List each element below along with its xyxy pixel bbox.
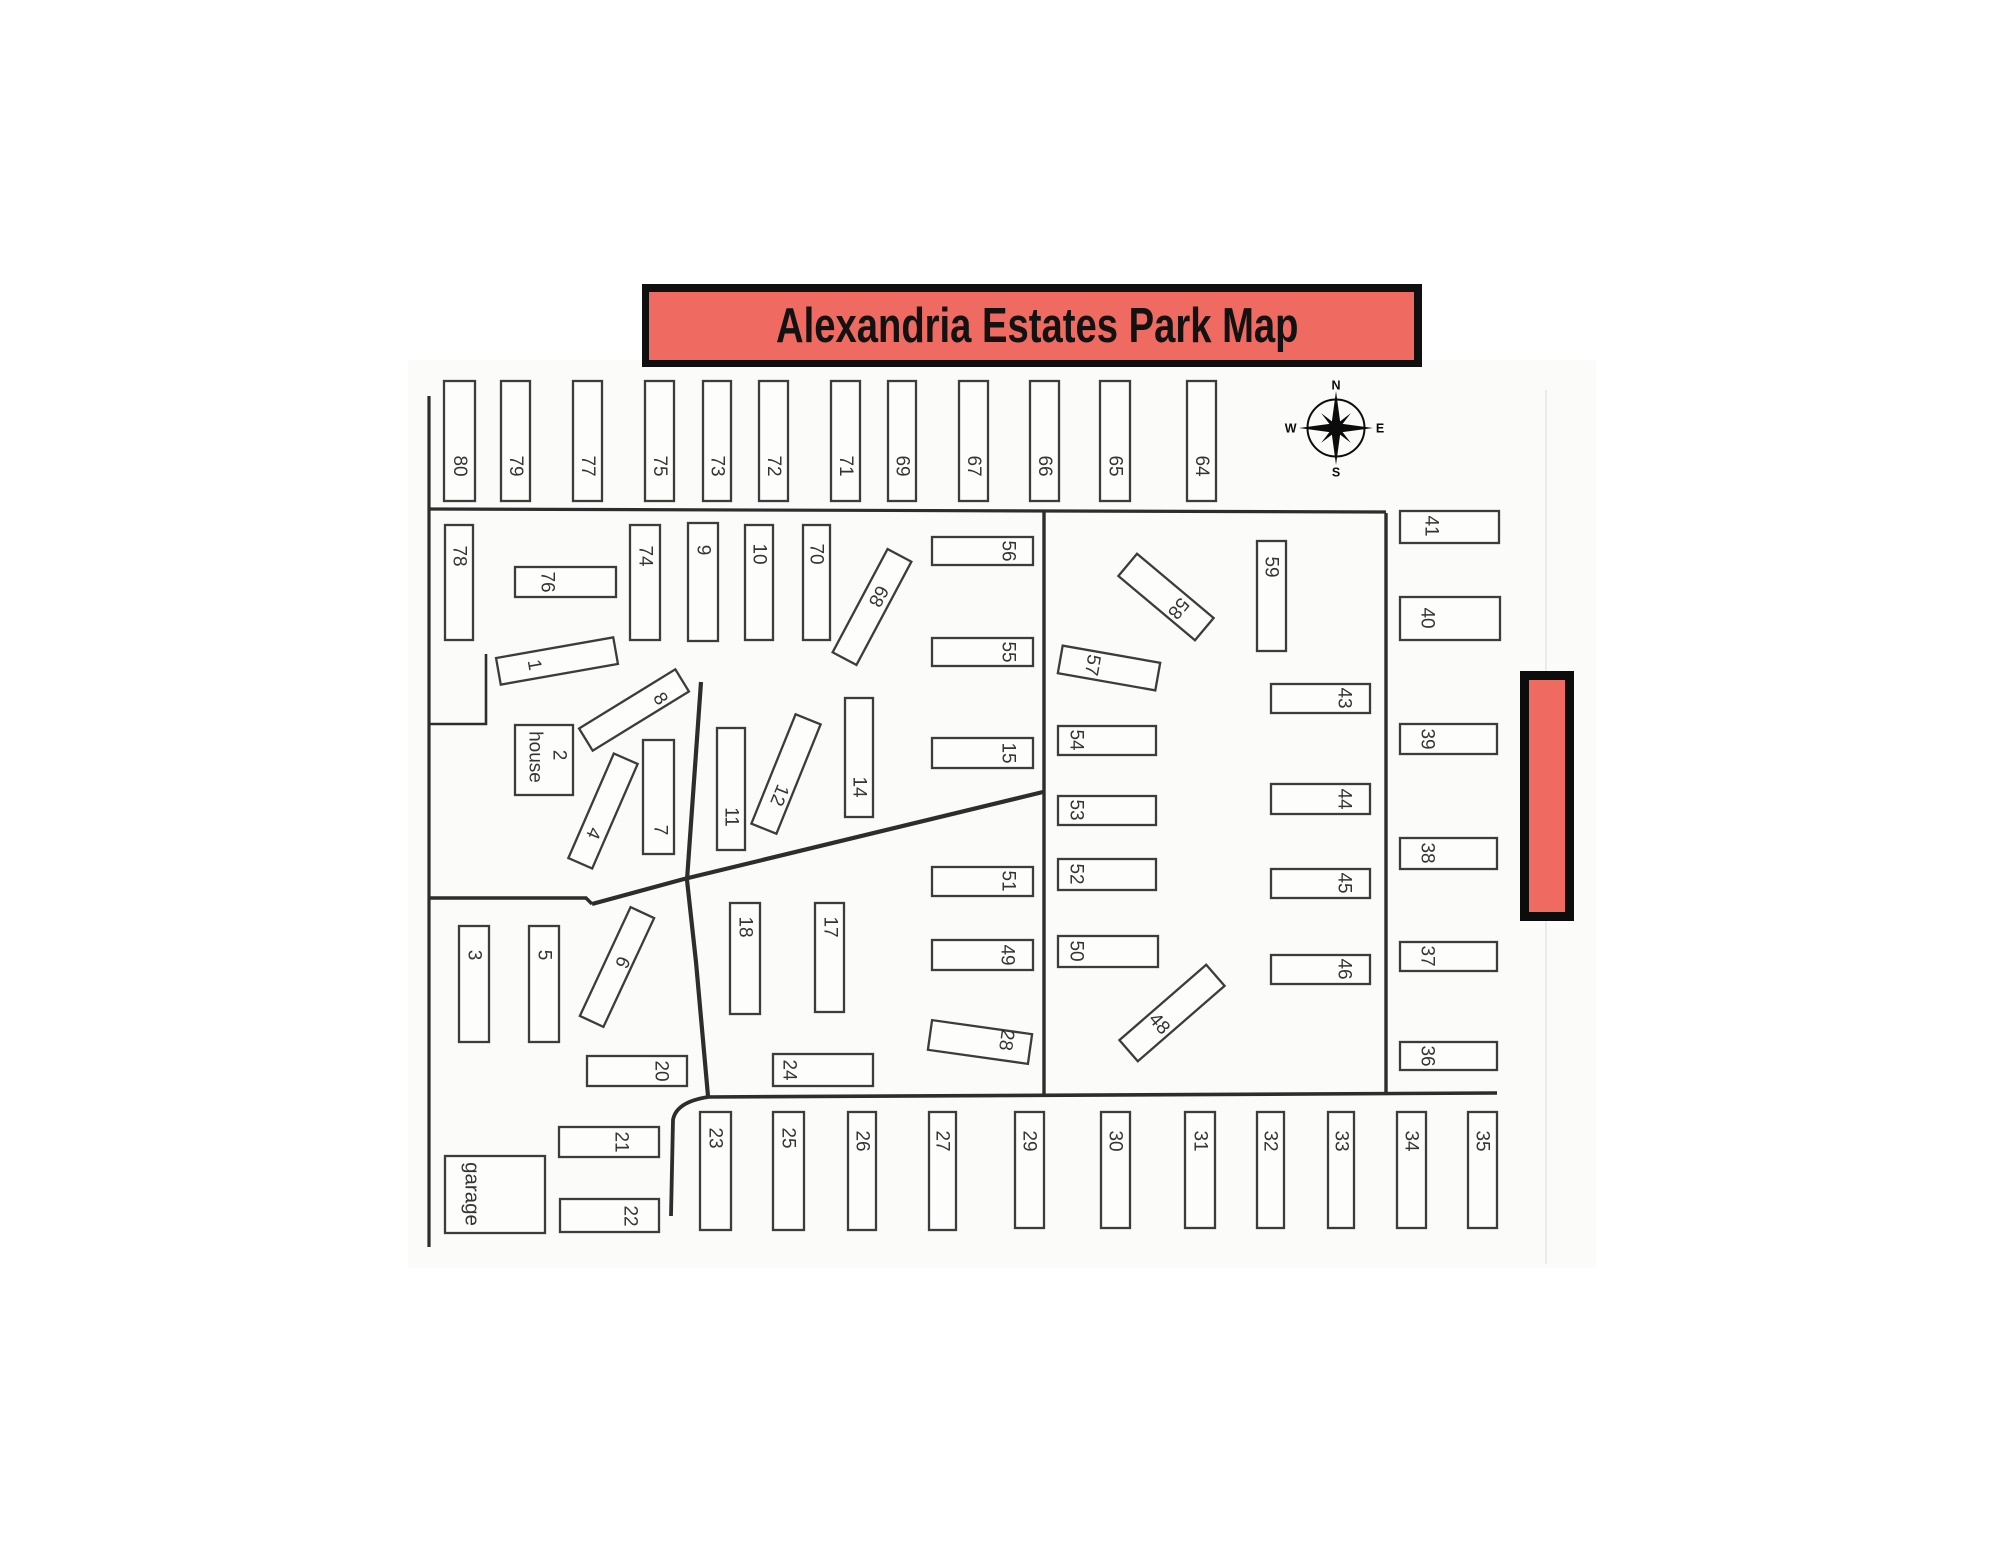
svg-text:10: 10 bbox=[749, 543, 770, 564]
svg-text:30: 30 bbox=[1105, 1130, 1126, 1151]
svg-text:80: 80 bbox=[449, 455, 470, 476]
svg-text:24: 24 bbox=[779, 1059, 800, 1081]
svg-text:56: 56 bbox=[998, 540, 1019, 561]
svg-text:37: 37 bbox=[1417, 945, 1438, 966]
svg-text:39: 39 bbox=[1417, 728, 1438, 749]
svg-text:71: 71 bbox=[835, 455, 856, 476]
svg-text:28: 28 bbox=[994, 1028, 1018, 1052]
svg-text:52: 52 bbox=[1066, 863, 1087, 884]
svg-text:14: 14 bbox=[849, 776, 870, 798]
svg-text:W: W bbox=[1285, 422, 1297, 436]
svg-text:33: 33 bbox=[1331, 1130, 1352, 1151]
svg-text:51: 51 bbox=[998, 870, 1019, 891]
svg-text:59: 59 bbox=[1261, 556, 1282, 577]
svg-text:55: 55 bbox=[998, 641, 1019, 662]
svg-text:36: 36 bbox=[1417, 1045, 1438, 1066]
svg-text:46: 46 bbox=[1334, 958, 1355, 979]
svg-text:5: 5 bbox=[534, 950, 555, 961]
svg-text:57: 57 bbox=[1080, 653, 1104, 677]
svg-text:54: 54 bbox=[1066, 729, 1087, 751]
svg-text:75: 75 bbox=[649, 455, 670, 476]
svg-text:40: 40 bbox=[1417, 607, 1438, 628]
svg-text:76: 76 bbox=[537, 571, 558, 592]
svg-text:2: 2 bbox=[549, 750, 570, 761]
svg-text:34: 34 bbox=[1401, 1130, 1422, 1152]
svg-text:23: 23 bbox=[705, 1127, 726, 1148]
svg-text:69: 69 bbox=[892, 455, 913, 476]
svg-text:44: 44 bbox=[1334, 788, 1355, 810]
svg-text:41: 41 bbox=[1421, 515, 1442, 536]
svg-text:77: 77 bbox=[577, 455, 598, 476]
svg-text:17: 17 bbox=[820, 916, 841, 937]
svg-text:22: 22 bbox=[620, 1205, 641, 1226]
svg-text:25: 25 bbox=[778, 1127, 799, 1148]
svg-text:18: 18 bbox=[735, 916, 756, 937]
svg-text:E: E bbox=[1376, 422, 1384, 436]
svg-text:73: 73 bbox=[707, 455, 728, 476]
svg-text:65: 65 bbox=[1105, 455, 1126, 476]
svg-text:15: 15 bbox=[998, 742, 1019, 763]
svg-text:66: 66 bbox=[1034, 455, 1055, 476]
svg-text:7: 7 bbox=[650, 825, 671, 836]
svg-text:53: 53 bbox=[1066, 799, 1087, 820]
svg-text:38: 38 bbox=[1417, 842, 1438, 863]
svg-text:3: 3 bbox=[464, 950, 485, 961]
svg-text:31: 31 bbox=[1190, 1130, 1211, 1151]
svg-text:45: 45 bbox=[1334, 872, 1355, 893]
svg-text:26: 26 bbox=[852, 1130, 873, 1151]
svg-text:S: S bbox=[1332, 466, 1340, 480]
svg-text:43: 43 bbox=[1334, 687, 1355, 708]
svg-text:garage: garage bbox=[461, 1162, 484, 1226]
svg-text:32: 32 bbox=[1260, 1130, 1281, 1151]
svg-text:11: 11 bbox=[721, 807, 742, 827]
svg-text:49: 49 bbox=[997, 944, 1018, 965]
svg-text:79: 79 bbox=[505, 455, 526, 476]
svg-text:29: 29 bbox=[1019, 1130, 1040, 1151]
svg-text:64: 64 bbox=[1191, 455, 1212, 477]
svg-text:20: 20 bbox=[651, 1060, 672, 1081]
svg-text:Alexandria Estates Park Map: Alexandria Estates Park Map bbox=[776, 299, 1299, 354]
svg-text:74: 74 bbox=[635, 545, 656, 567]
svg-text:9: 9 bbox=[693, 545, 714, 556]
svg-text:67: 67 bbox=[963, 455, 984, 476]
svg-text:72: 72 bbox=[763, 455, 784, 476]
svg-text:21: 21 bbox=[611, 1131, 632, 1152]
svg-text:house: house bbox=[525, 731, 546, 783]
svg-text:70: 70 bbox=[806, 543, 827, 564]
svg-text:50: 50 bbox=[1066, 940, 1087, 961]
svg-text:78: 78 bbox=[449, 545, 470, 566]
svg-text:27: 27 bbox=[932, 1130, 953, 1151]
svg-text:N: N bbox=[1331, 379, 1340, 393]
svg-text:35: 35 bbox=[1472, 1130, 1493, 1151]
